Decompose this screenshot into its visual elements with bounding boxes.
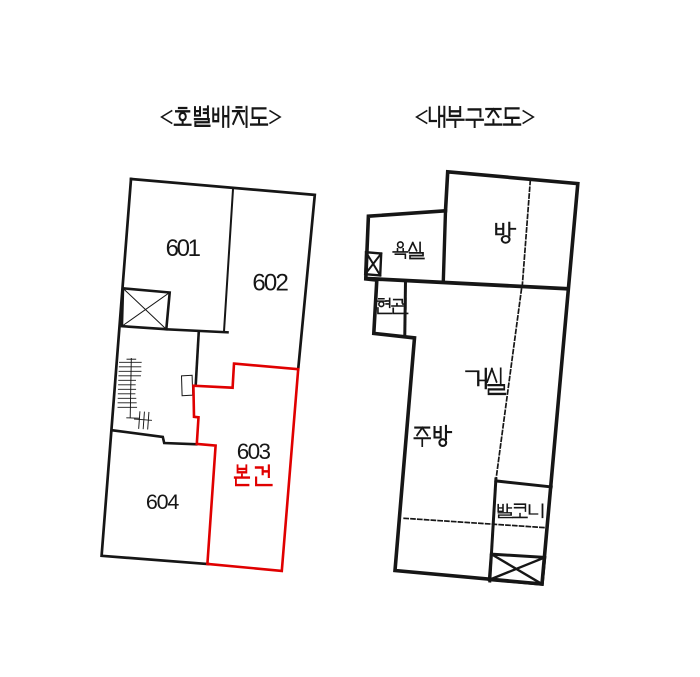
- svg-text:602: 602: [252, 269, 288, 296]
- svg-text:601: 601: [166, 235, 201, 262]
- svg-text:603: 603: [237, 439, 271, 464]
- svg-text:604: 604: [146, 490, 180, 514]
